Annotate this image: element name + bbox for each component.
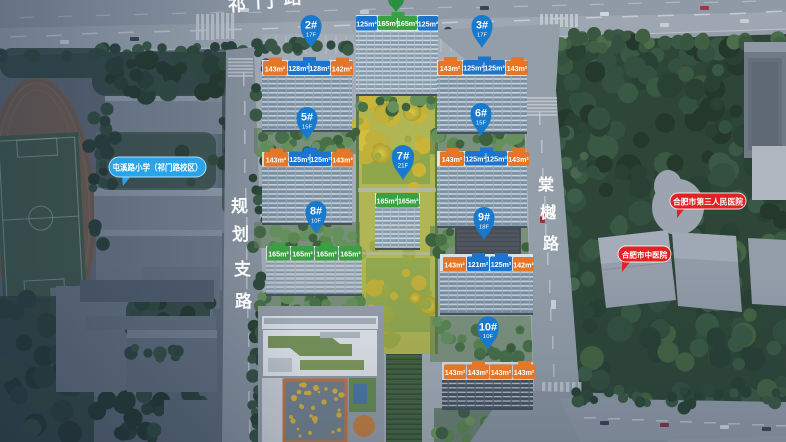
svg-text:2#: 2# bbox=[305, 20, 317, 32]
svg-text:划: 划 bbox=[232, 224, 249, 244]
svg-text:7#: 7# bbox=[397, 151, 410, 163]
svg-text:路: 路 bbox=[543, 234, 560, 253]
svg-text:5#: 5# bbox=[301, 112, 313, 124]
svg-text:规: 规 bbox=[231, 197, 248, 216]
svg-text:143m²: 143m² bbox=[491, 369, 512, 377]
svg-text:165m²: 165m² bbox=[378, 20, 399, 28]
svg-text:17F: 17F bbox=[477, 32, 487, 38]
svg-text:10F: 10F bbox=[483, 334, 494, 340]
svg-text:路: 路 bbox=[283, 0, 303, 8]
svg-text:143m²: 143m² bbox=[266, 156, 287, 164]
svg-text:143m²: 143m² bbox=[265, 65, 286, 73]
svg-text:合肥市中医院: 合肥市中医院 bbox=[622, 250, 668, 260]
svg-text:125m²: 125m² bbox=[465, 155, 486, 163]
svg-text:17F: 17F bbox=[306, 32, 316, 38]
svg-text:125m²: 125m² bbox=[310, 156, 331, 164]
svg-text:125m²: 125m² bbox=[484, 64, 505, 72]
svg-text:143m²: 143m² bbox=[440, 65, 461, 73]
svg-text:祁: 祁 bbox=[227, 0, 246, 15]
svg-text:142m²: 142m² bbox=[513, 261, 534, 269]
svg-text:143m²: 143m² bbox=[444, 261, 465, 269]
svg-text:9#: 9# bbox=[478, 212, 490, 224]
svg-text:125m²: 125m² bbox=[289, 156, 310, 164]
svg-text:143m²: 143m² bbox=[332, 156, 353, 164]
svg-text:125m²: 125m² bbox=[486, 155, 507, 163]
svg-text:樾: 樾 bbox=[540, 203, 557, 222]
svg-text:125m²: 125m² bbox=[356, 20, 377, 28]
svg-text:128m²: 128m² bbox=[309, 65, 330, 73]
svg-text:125m²: 125m² bbox=[463, 64, 484, 72]
svg-text:165m²: 165m² bbox=[340, 250, 361, 258]
svg-text:棠: 棠 bbox=[537, 175, 555, 194]
svg-text:165m²: 165m² bbox=[398, 197, 419, 205]
svg-text:143m²: 143m² bbox=[508, 156, 529, 164]
svg-text:165m²: 165m² bbox=[268, 250, 289, 258]
svg-text:121m²: 121m² bbox=[468, 261, 489, 269]
svg-text:143m²: 143m² bbox=[468, 369, 489, 377]
svg-text:165m²: 165m² bbox=[292, 250, 313, 258]
svg-text:165m²: 165m² bbox=[397, 20, 418, 28]
svg-text:路: 路 bbox=[235, 291, 253, 311]
svg-text:10F: 10F bbox=[311, 218, 321, 224]
svg-text:8#: 8# bbox=[310, 206, 322, 218]
svg-text:125m²: 125m² bbox=[491, 261, 512, 269]
svg-text:165m²: 165m² bbox=[377, 197, 398, 205]
svg-text:15F: 15F bbox=[476, 120, 486, 126]
svg-text:6#: 6# bbox=[475, 108, 487, 120]
svg-text:142m²: 142m² bbox=[332, 65, 353, 73]
svg-text:支: 支 bbox=[234, 259, 252, 279]
svg-text:143m²: 143m² bbox=[507, 65, 528, 73]
svg-text:18F: 18F bbox=[479, 224, 489, 230]
svg-text:21F: 21F bbox=[398, 163, 409, 170]
svg-text:143m²: 143m² bbox=[445, 369, 466, 377]
svg-text:128m²: 128m² bbox=[288, 65, 309, 73]
svg-text:143m²: 143m² bbox=[514, 369, 535, 377]
svg-text:10#: 10# bbox=[479, 321, 497, 333]
svg-text:合肥市第三人民医院: 合肥市第三人民医院 bbox=[672, 197, 743, 207]
svg-text:125m²: 125m² bbox=[418, 20, 439, 28]
svg-text:15F: 15F bbox=[302, 124, 312, 130]
svg-text:门: 门 bbox=[255, 0, 274, 12]
svg-text:143m²: 143m² bbox=[442, 156, 463, 164]
svg-text:屯溪路小学（祁门路校区）: 屯溪路小学（祁门路校区） bbox=[113, 162, 203, 173]
svg-text:3#: 3# bbox=[476, 20, 488, 32]
svg-text:165m²: 165m² bbox=[316, 250, 337, 258]
